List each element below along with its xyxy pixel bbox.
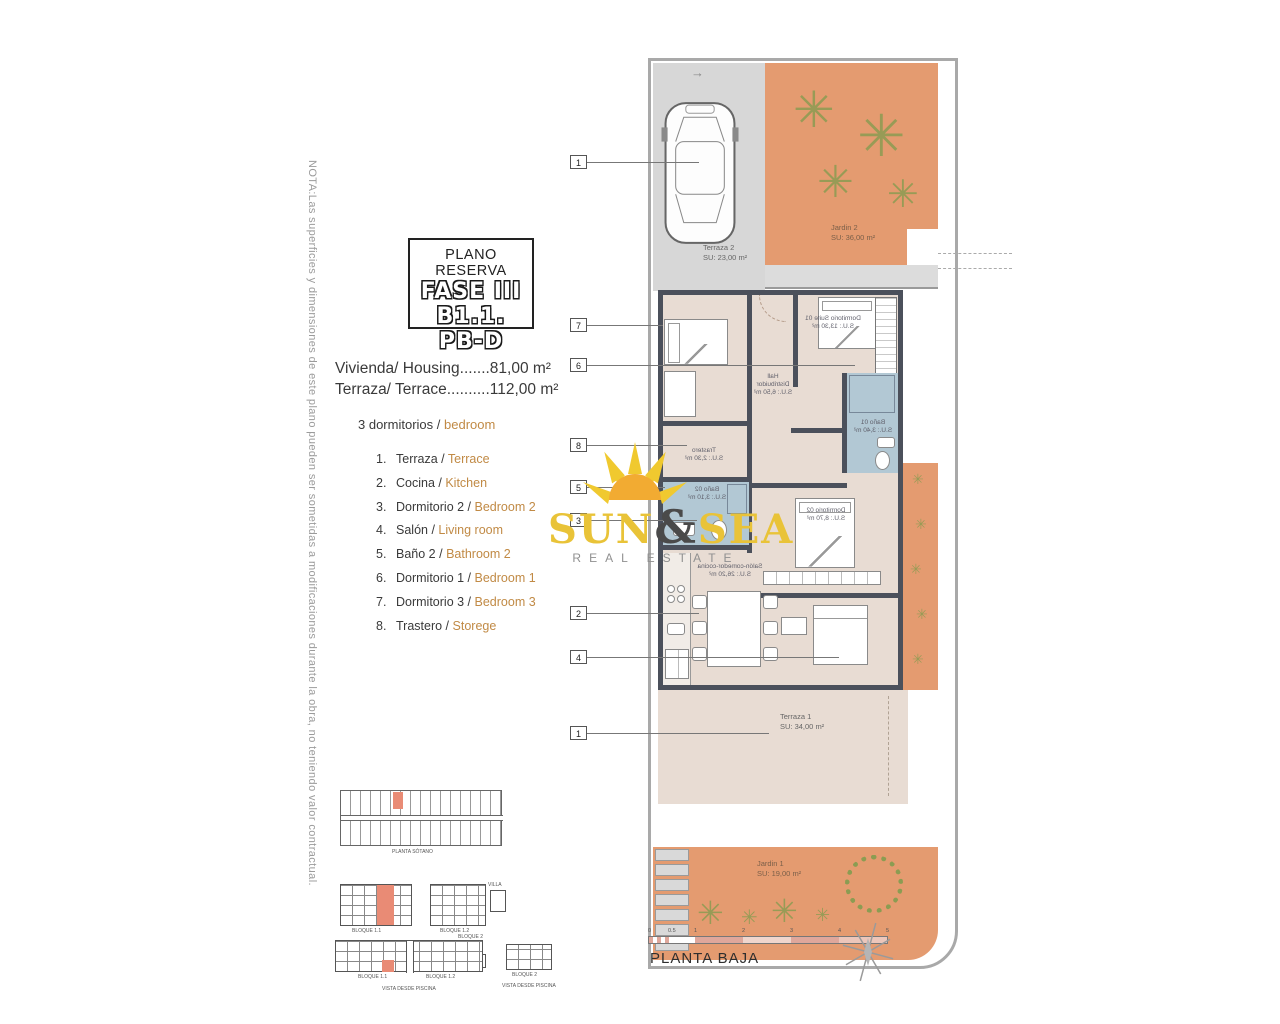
hob-burner-icon [677,585,685,593]
room-legend: 1.Terraza / Terrace 2.Cocina / Kitchen 3… [376,452,536,642]
watermark-ampersand: & [654,500,698,554]
plant-icon: ✳ [815,907,830,925]
garden-notch [907,229,938,265]
highlighted-unit [377,885,394,925]
highlighted-unit [382,960,394,972]
legend-item: 8.Trastero / Storege [376,619,536,643]
callout-1b: 1 [570,726,587,740]
plant-icon: ✳ [916,608,928,622]
chair-icon [692,647,707,661]
boundary-dashed [888,696,889,796]
plant-icon: ✳ [817,161,854,205]
plant-icon: ✳ [857,107,906,165]
chair-icon [763,621,778,635]
floor-plan-sheet: NOTA:Las superficies y dimensiones de es… [0,0,1280,1024]
pillow [668,323,680,363]
leader-line [587,365,855,366]
leader-line [587,162,699,163]
bano1-label: Baño 01 S.U.: 3,40 m² [853,419,893,435]
chair-icon [692,595,707,609]
watermark-sea: SEA [698,506,794,553]
entrance-arrow-icon: → [691,65,704,80]
legend-item: 1.Terraza / Terrace [376,452,536,476]
survey-dashed-line [938,268,1012,269]
chair-icon [763,595,778,609]
basement-plan [340,790,502,846]
block-1-1-plan [340,884,412,926]
sink-icon [877,437,895,448]
watermark-subtitle: REAL ESTATE [556,551,756,565]
bush-ring-icon [845,855,903,913]
surface-summary: Vivienda/ Housing.......81,00 m² Terraza… [335,358,558,400]
car-icon [661,97,739,249]
housing-area-line: Vivienda/ Housing.......81,00 m² [335,358,558,379]
survey-dashed-line [938,253,1012,254]
leader-line [587,657,839,658]
plant-icon: ✳ [915,518,927,532]
callout-7: 7 [570,318,587,332]
callout-6: 6 [570,358,587,372]
hob-burner-icon [667,585,675,593]
parking-terrace-2: → Terraza 2 SU: 23,00 m² [653,63,765,291]
chair-icon [692,621,707,635]
unit-label: B1.1. PB-D [410,304,532,354]
callout-2: 2 [570,606,587,620]
wall [663,421,752,426]
hob-burner-icon [677,595,685,603]
pillow [822,301,872,311]
jardin2-label: Jardin 2 SU: 36,00 m² [831,223,875,242]
legend-item: 6.Dormitorio 1 / Bedroom 1 [376,571,536,595]
terraza2-label: Terraza 2 SU: 23,00 m² [703,243,747,262]
terraza1-label: Terraza 1 SU: 34,00 m² [780,712,824,731]
elevation-blocks-1 [335,940,483,972]
terrace-area-line: Terraza/ Terrace..........112,00 m² [335,379,558,400]
kitchen-counter [663,553,691,685]
chair-icon [763,647,778,661]
fridge-icon [665,649,689,679]
leader-line [587,733,769,734]
watermark-sun: SUN [548,506,654,553]
side-garden-strip: ✳ ✳ ✳ ✳ ✳ [903,463,938,690]
callout-1: 1 [570,155,587,169]
dwelling: Dormitorio Suite 01 S.U.: 13,30 m² Hall … [658,290,903,690]
plant-icon: ✳ [910,563,922,577]
shower-icon [849,375,895,413]
jardin1-label: Jardin 1 SU: 19,00 m² [757,859,801,878]
vista-caption-2: VISTA DESDE PISCINA [502,983,556,989]
desk-icon [664,371,696,417]
bathroom-1: Baño 01 S.U.: 3,40 m² [847,373,898,473]
plant-icon: ✳ [697,897,724,929]
bed-icon [664,319,728,365]
plant-icon: ✳ [912,473,924,487]
block-1-2-plan [430,884,486,926]
plant-icon: ✳ [793,85,835,135]
bedrooms-en: bedroom [444,417,495,432]
hob-burner-icon [667,595,675,603]
dining-table-icon [707,591,761,667]
door-arc [759,295,786,322]
wall [752,483,847,488]
callout-4: 4 [570,650,587,664]
legend-item: 3.Dormitorio 2 / Bedroom 2 [376,500,536,524]
suite-label: Dormitorio Suite 01 S.U.: 13,30 m² [791,315,875,331]
highlighted-stall [393,792,403,809]
bedrooms-line: 3 dormitorios / bedroom [358,417,495,432]
sink-icon [667,623,685,635]
basement-plan-label: PLANTA SÓTANO [392,849,433,855]
phase-label: FASE III [410,279,532,304]
plan-type-label: PLANO RESERVA [410,247,532,279]
disclaimer-note: NOTA:Las superficies y dimensiones de es… [306,160,318,905]
plant-icon: ✳ [912,653,924,667]
floor-name-label: PLANTA BAJA [650,950,759,967]
plant-icon: ✳ [741,907,758,927]
legend-item: 7.Dormitorio 3 / Bedroom 3 [376,595,536,619]
legend-item: 2.Cocina / Kitchen [376,476,536,500]
plant-icon: ✳ [887,175,919,213]
leader-line [587,613,699,614]
compass-icon [836,920,900,984]
toilet-icon [875,451,890,470]
title-box: PLANO RESERVA FASE III B1.1. PB-D [408,238,534,329]
dorm2-label: Dormitorio 02 S.U.: 8,70 m² [791,507,861,523]
legend-item: 5.Baño 2 / Bathroom 2 [376,547,536,571]
salon-label: Salón-comedor-cocina S.U.: 26,20 m² [691,563,769,579]
vista-caption-1: VISTA DESDE PISCINA [382,986,436,992]
bedrooms-es: 3 dormitorios / [358,417,440,432]
elevation-blocks-2 [506,944,552,970]
coffee-table-icon [781,617,807,635]
hall-label: Hall Distribuidor S.U.: 6,50 m² [751,373,795,397]
dresser-icon [763,571,881,585]
garden-2: ✳ ✳ ✳ ✳ Jardin 2 SU: 36,00 m² [765,63,938,265]
leader-line [587,325,663,326]
terrace-1: Terraza 1 SU: 34,00 m² [658,690,908,804]
watermark-wordmark: SUN&SEA [548,500,763,554]
villa-plan [490,890,506,912]
porch-band [765,265,938,289]
legend-item: 4.Salón / Living room [376,523,536,547]
sofa-icon [813,605,868,665]
plant-icon: ✳ [771,895,798,927]
